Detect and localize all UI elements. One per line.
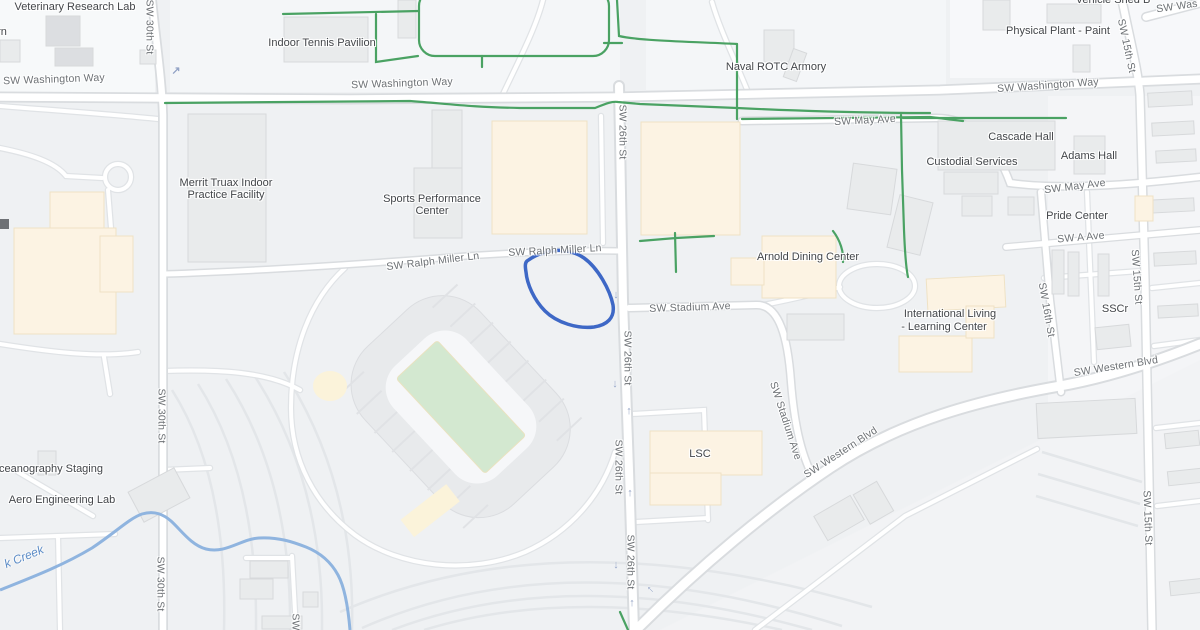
place-label-sscr[interactable]: SSCr bbox=[1102, 304, 1128, 316]
road-label: SW 15th St bbox=[1141, 490, 1154, 545]
building bbox=[303, 592, 318, 607]
turn-arrow-icon: ↗ bbox=[171, 66, 180, 78]
building-arnold-dining bbox=[762, 236, 836, 298]
place-label-illc[interactable]: - Learning Center bbox=[901, 322, 987, 334]
place-label-merrit-truax[interactable]: Merrit Truax Indoor bbox=[180, 178, 273, 190]
building bbox=[1095, 324, 1131, 349]
building bbox=[1158, 304, 1199, 318]
building bbox=[1073, 45, 1090, 72]
one-way-arrow-icon: ↓ bbox=[612, 379, 618, 391]
building bbox=[46, 16, 80, 46]
building bbox=[787, 314, 844, 340]
building bbox=[250, 561, 288, 578]
stadium-accent bbox=[313, 371, 347, 401]
place-label-naval-rotc-armory[interactable]: Naval ROTC Armory bbox=[726, 62, 826, 74]
building bbox=[1154, 251, 1197, 266]
building bbox=[1052, 250, 1064, 294]
place-label-sports-performance-center[interactable]: Center bbox=[415, 206, 448, 218]
place-label-vehicle-shed-b[interactable]: Vehicle Shed B bbox=[1076, 0, 1151, 7]
place-label-partial[interactable]: rn bbox=[0, 27, 7, 39]
building bbox=[1164, 430, 1199, 448]
place-label-adams-hall[interactable]: Adams Hall bbox=[1061, 151, 1117, 163]
building-peach bbox=[492, 121, 587, 234]
one-way-arrow-icon: ↑ bbox=[627, 488, 633, 500]
building bbox=[1156, 149, 1197, 163]
building bbox=[1169, 578, 1200, 595]
place-label-veterinary-research-lab[interactable]: Veterinary Research Lab bbox=[14, 2, 135, 14]
building-illc bbox=[899, 336, 972, 372]
place-label-cascade-hall[interactable]: Cascade Hall bbox=[988, 132, 1053, 144]
building-coliseum bbox=[100, 236, 133, 292]
building-lsc bbox=[650, 473, 721, 505]
road-label: SW 30th St bbox=[155, 388, 166, 443]
place-label-arnold-dining-center[interactable]: Arnold Dining Center bbox=[757, 252, 859, 264]
building bbox=[398, 0, 416, 38]
building bbox=[55, 48, 93, 66]
building bbox=[1148, 91, 1193, 107]
place-label-oceanography-staging[interactable]: ceanography Staging bbox=[0, 464, 103, 476]
road-label: SW 26th St bbox=[621, 330, 632, 385]
map-canvas bbox=[0, 0, 1200, 630]
building-sports-performance bbox=[432, 110, 462, 172]
road-label: SW 26th St bbox=[624, 534, 635, 589]
building bbox=[847, 163, 897, 215]
place-label-lsc[interactable]: LSC bbox=[689, 449, 710, 461]
place-label-aero-engineering-lab[interactable]: Aero Engineering Lab bbox=[9, 495, 115, 507]
building bbox=[240, 579, 273, 599]
place-label-sports-performance-center[interactable]: Sports Performance bbox=[383, 194, 481, 206]
building-naval-rotc bbox=[764, 30, 794, 62]
building bbox=[0, 219, 9, 229]
place-label-indoor-tennis-pavilion[interactable]: Indoor Tennis Pavilion bbox=[268, 38, 375, 50]
building bbox=[1036, 398, 1137, 438]
building bbox=[962, 196, 992, 216]
one-way-arrow-icon: ↓ bbox=[613, 560, 619, 572]
building bbox=[1167, 468, 1200, 485]
one-way-arrow-icon: ↑ bbox=[626, 406, 632, 418]
building bbox=[1135, 196, 1153, 221]
building-custodial bbox=[944, 172, 998, 194]
one-way-arrow-icon: ↑ bbox=[629, 598, 635, 610]
road-label: SW bbox=[289, 613, 300, 630]
place-label-custodial-services[interactable]: Custodial Services bbox=[926, 157, 1017, 169]
place-label-merrit-truax[interactable]: Practice Facility bbox=[187, 190, 264, 202]
road-label: SW 30th St bbox=[143, 0, 154, 55]
road-label: SW 26th St bbox=[612, 439, 623, 494]
building bbox=[1098, 254, 1109, 296]
building bbox=[1008, 197, 1034, 215]
building bbox=[0, 40, 20, 62]
building bbox=[1068, 252, 1079, 296]
road-label: SW 30th St bbox=[154, 556, 165, 611]
building-physical-plant bbox=[1047, 4, 1101, 23]
building-peach bbox=[641, 122, 740, 235]
building bbox=[1152, 121, 1195, 136]
road-label: SW 26th St bbox=[616, 104, 627, 159]
place-label-pride-center[interactable]: Pride Center bbox=[1046, 211, 1108, 223]
place-label-illc[interactable]: International Living bbox=[904, 309, 996, 321]
one-way-arrow-icon: ↓ bbox=[613, 290, 619, 302]
map-viewport[interactable]: SW Washington Way SW Washington Way SW W… bbox=[0, 0, 1200, 630]
building bbox=[1150, 198, 1195, 213]
place-label-physical-plant-paint[interactable]: Physical Plant - Paint bbox=[1006, 26, 1110, 38]
